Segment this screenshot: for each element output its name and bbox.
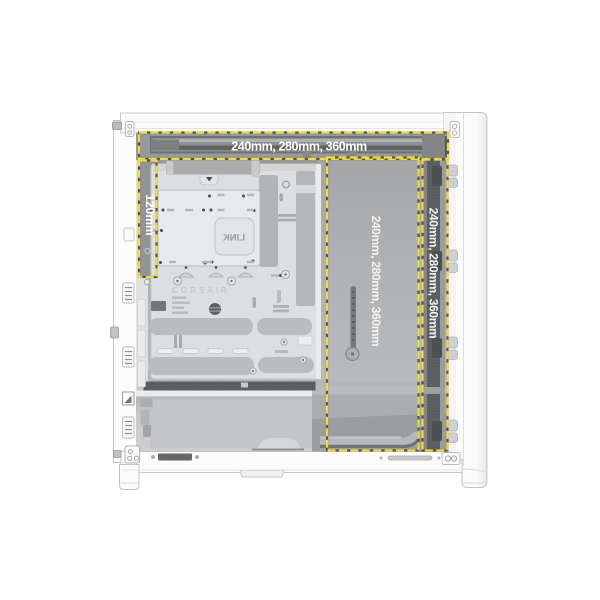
svg-text:120mm: 120mm: [143, 194, 157, 235]
svg-text:240mm, 280mm, 360mm: 240mm, 280mm, 360mm: [427, 208, 441, 339]
svg-text:CORSAIR: CORSAIR: [172, 285, 229, 295]
svg-text:240mm, 280mm, 360mm: 240mm, 280mm, 360mm: [369, 216, 383, 347]
svg-text:LINK: LINK: [223, 233, 245, 244]
svg-text:240mm, 280mm, 360mm: 240mm, 280mm, 360mm: [231, 140, 367, 154]
